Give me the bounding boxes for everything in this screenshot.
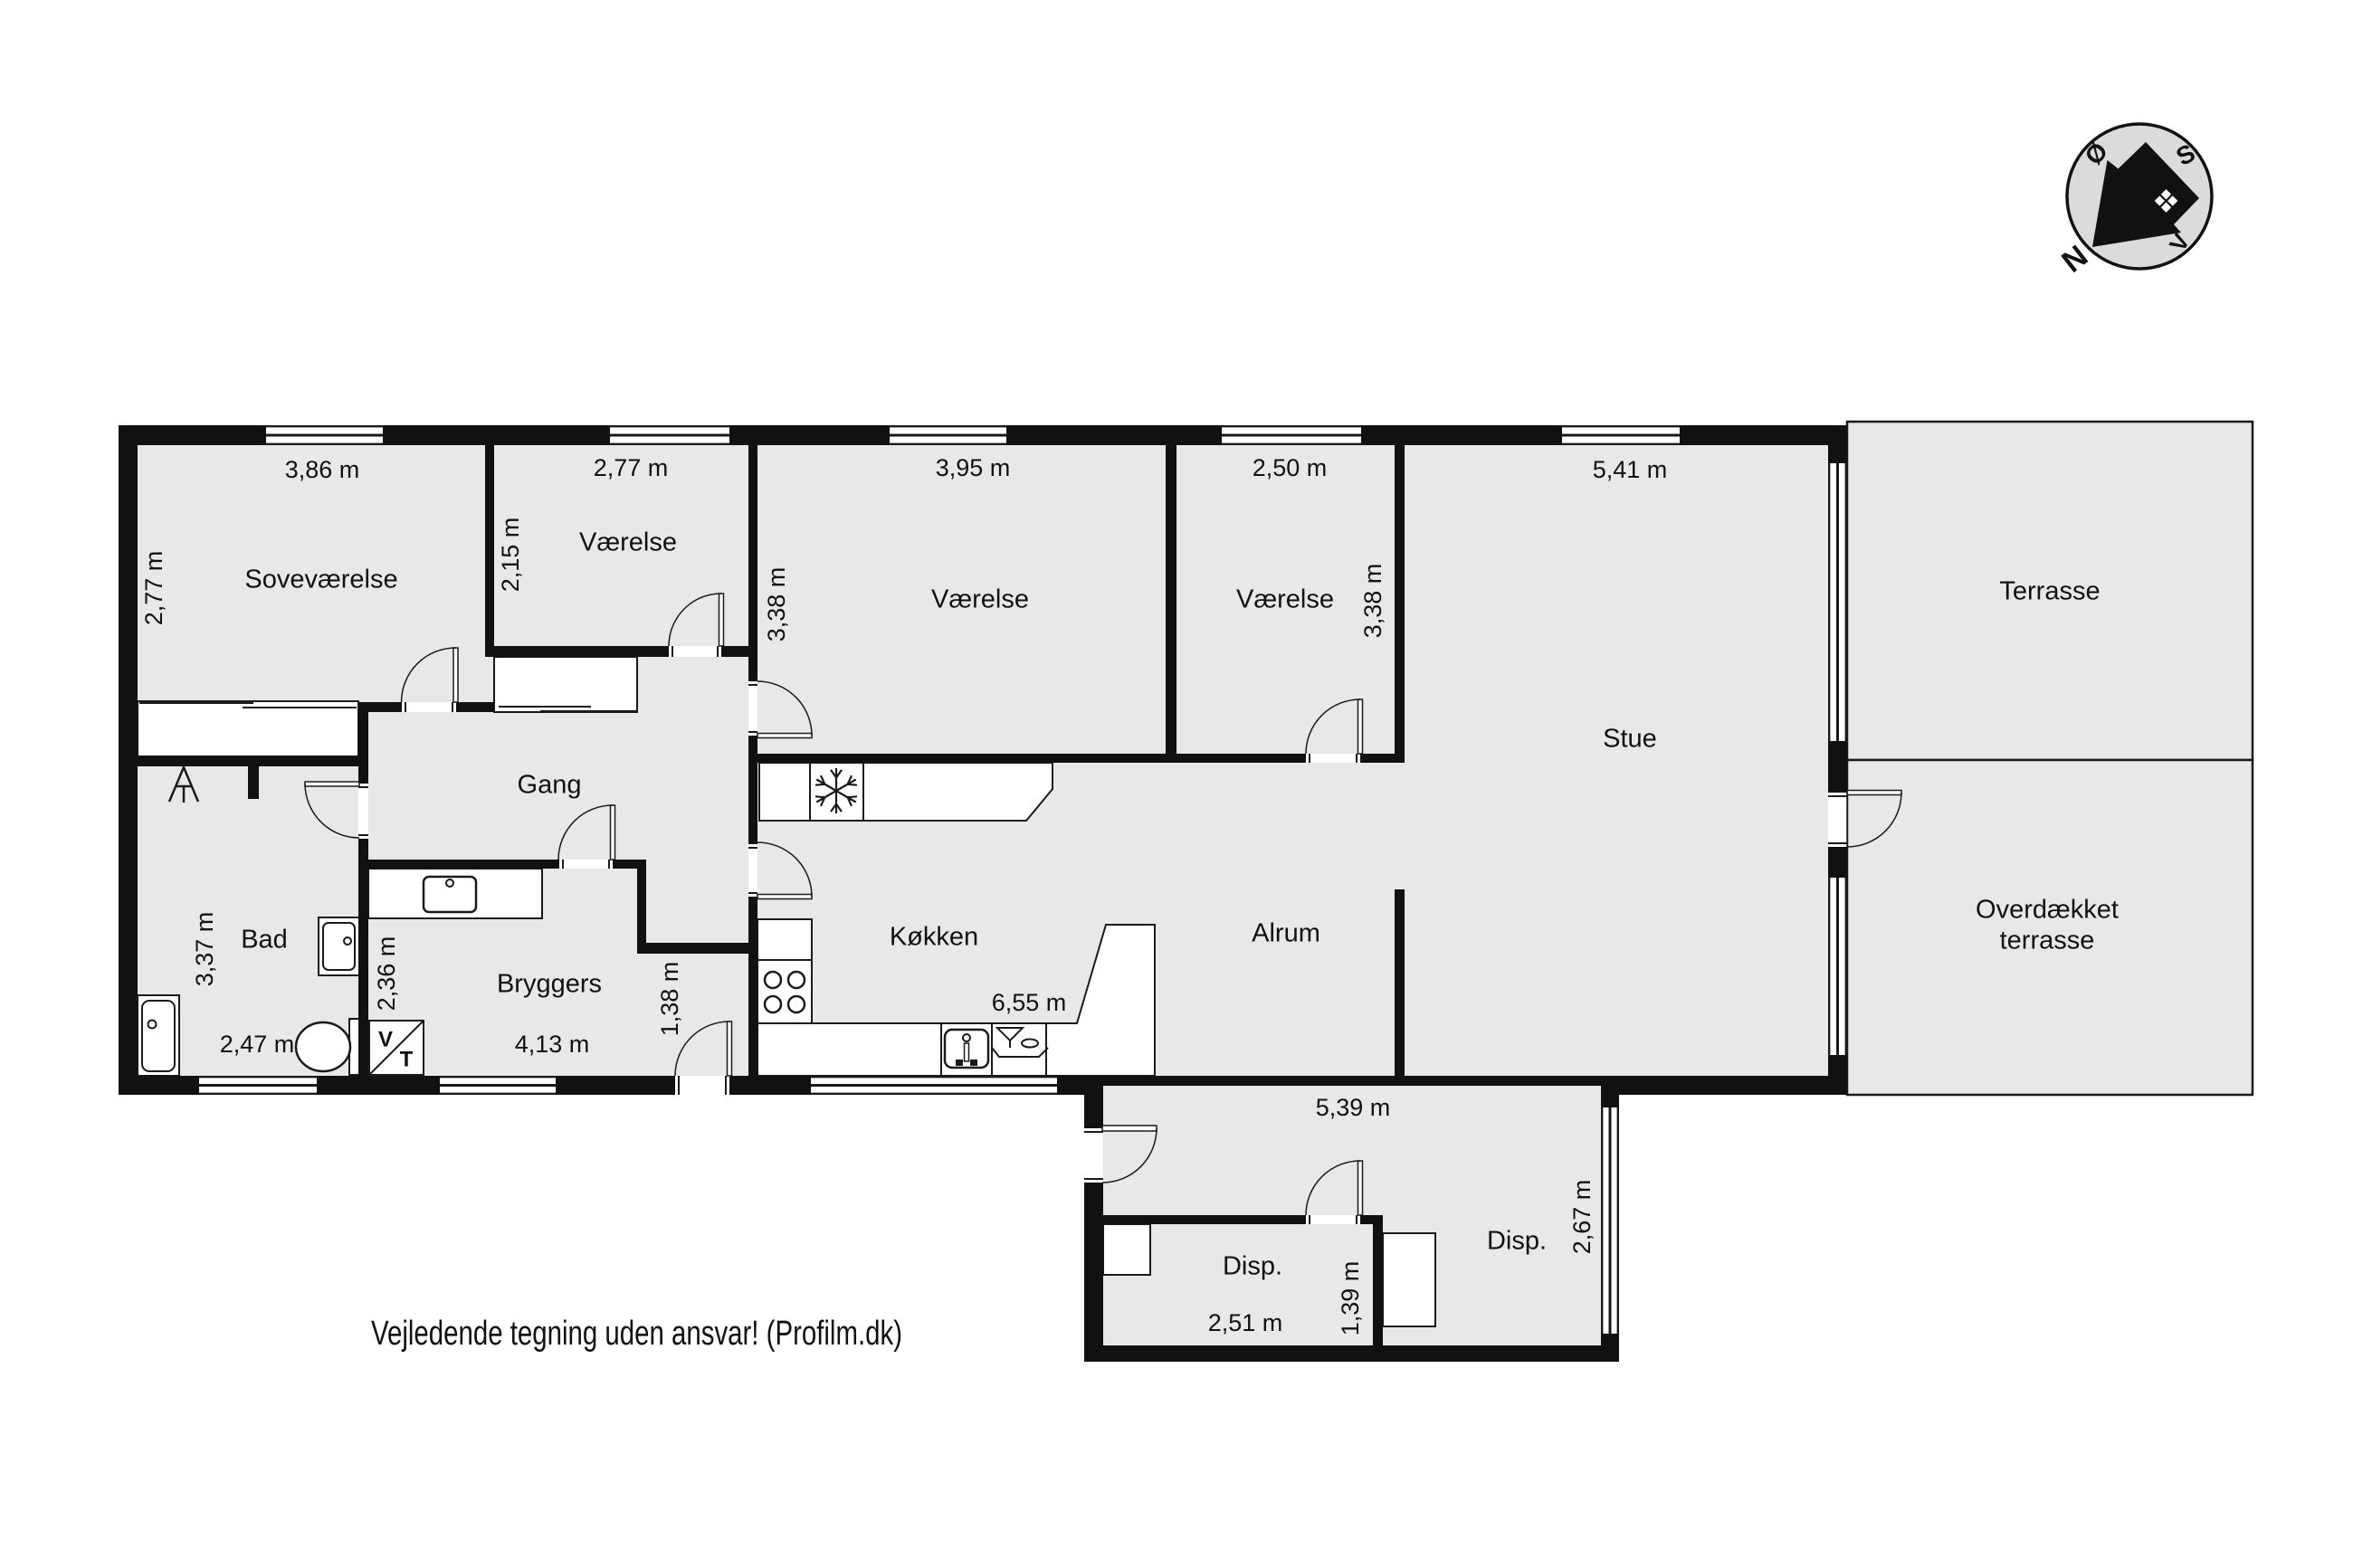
svg-text:2,67 m: 2,67 m (1568, 1180, 1596, 1255)
svg-text:2,15 m: 2,15 m (497, 518, 524, 593)
svg-text:3,37 m: 3,37 m (191, 912, 218, 987)
svg-text:Disp.: Disp. (1487, 1227, 1547, 1256)
svg-text:1,39 m: 1,39 m (1337, 1261, 1364, 1336)
svg-text:Terrasse: Terrasse (1999, 577, 2100, 606)
svg-text:Vejledende tegning uden ansvar: Vejledende tegning uden ansvar! (Profilm… (371, 1315, 902, 1353)
svg-text:3,95 m: 3,95 m (936, 454, 1011, 481)
svg-text:T: T (400, 1047, 414, 1071)
svg-text:Soveværelse: Soveværelse (244, 565, 397, 594)
svg-text:2,50 m: 2,50 m (1253, 454, 1328, 481)
svg-text:Gang: Gang (518, 771, 582, 800)
svg-text:2,77 m: 2,77 m (594, 454, 669, 481)
svg-text:Overdækket: Overdækket (1976, 896, 2119, 925)
svg-text:Værelse: Værelse (931, 585, 1029, 614)
svg-text:5,39 m: 5,39 m (1316, 1094, 1391, 1121)
svg-text:2,51 m: 2,51 m (1208, 1309, 1283, 1336)
svg-text:V: V (378, 1027, 393, 1051)
svg-text:Køkken: Køkken (890, 923, 978, 952)
svg-text:Stue: Stue (1603, 725, 1657, 754)
svg-text:2,47 m: 2,47 m (220, 1031, 295, 1058)
svg-text:1,38 m: 1,38 m (656, 962, 683, 1037)
svg-text:3,38 m: 3,38 m (763, 567, 790, 642)
svg-text:Værelse: Værelse (579, 528, 677, 557)
svg-text:2,36 m: 2,36 m (373, 936, 400, 1012)
svg-text:Værelse: Værelse (1236, 585, 1334, 614)
svg-text:Disp.: Disp. (1223, 1252, 1282, 1281)
svg-text:4,13 m: 4,13 m (515, 1031, 590, 1058)
svg-text:Bad: Bad (241, 926, 288, 955)
svg-text:5,41 m: 5,41 m (1593, 456, 1668, 483)
svg-text:6,55 m: 6,55 m (992, 989, 1067, 1016)
svg-text:3,86 m: 3,86 m (285, 456, 360, 483)
svg-text:3,38 m: 3,38 m (1359, 564, 1386, 639)
svg-text:terrasse: terrasse (2000, 927, 2095, 955)
svg-text:2,77 m: 2,77 m (140, 551, 167, 626)
svg-text:Alrum: Alrum (1252, 919, 1320, 948)
svg-text:Bryggers: Bryggers (497, 970, 602, 999)
